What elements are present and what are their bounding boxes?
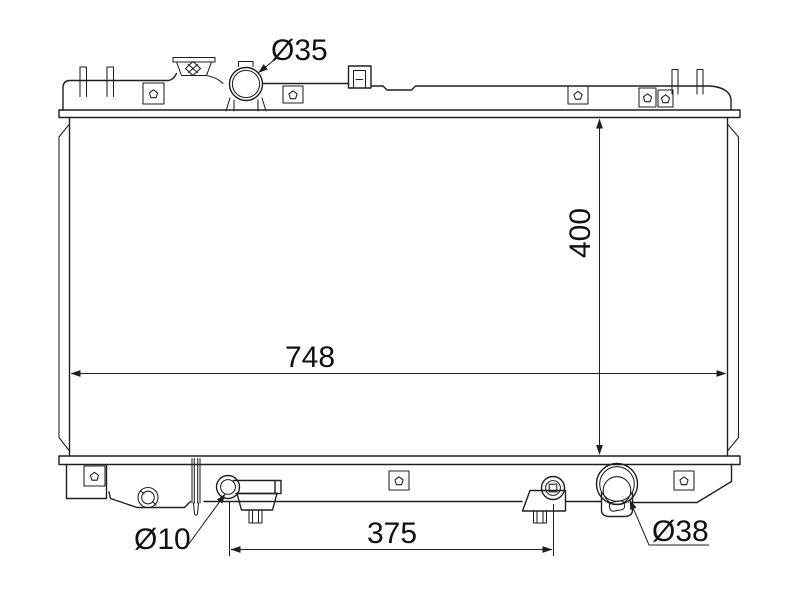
dimension-arrow <box>596 445 603 455</box>
bolt-mount-pin <box>534 511 547 523</box>
reservoir-body <box>177 62 224 84</box>
bolt-fitting <box>542 477 565 500</box>
top-tank <box>59 58 740 118</box>
side-plate-right <box>728 124 739 451</box>
dimension-arrow <box>626 498 636 510</box>
filler-neck-inner <box>232 70 259 97</box>
filler-neck-tab <box>239 62 254 67</box>
dimension-width-748: 748 <box>71 341 727 377</box>
outlet-clip <box>609 500 625 511</box>
drain-plug <box>138 488 158 508</box>
dimension-arrow <box>256 64 268 76</box>
mount-bracket-bottom-1 <box>84 466 105 486</box>
dim-label-d38: Ø38 <box>652 515 709 548</box>
mount-bracket-top-3 <box>568 86 588 104</box>
dimension-arrow <box>231 546 241 553</box>
mounting-pins-top <box>80 67 703 97</box>
bottom-flange <box>59 456 740 465</box>
dimension-span-375: 375 <box>230 501 554 556</box>
dim-label-748: 748 <box>285 341 335 374</box>
label-outlet-diameter: Ø38 <box>626 498 709 548</box>
dim-label-d10: Ø10 <box>134 523 191 556</box>
reservoir-cap-icon <box>186 62 201 76</box>
clip-bracket <box>349 66 372 88</box>
bottom-tank <box>59 456 740 523</box>
mount-bracket-top-5 <box>658 90 673 107</box>
drain-pipe <box>192 459 200 516</box>
label-filler-neck-diameter: Ø35 <box>256 34 328 76</box>
filler-neck <box>226 62 266 112</box>
dim-label-375: 375 <box>367 517 417 550</box>
mount-bracket-bottom-2 <box>389 471 409 490</box>
radiator-technical-drawing: 748 400 375 Ø35 Ø10 Ø38 <box>0 0 800 600</box>
dimension-arrow <box>71 370 81 377</box>
dim-label-d35: Ø35 <box>271 34 328 67</box>
inlet-mount-bracket <box>237 494 277 524</box>
top-flange <box>59 110 740 118</box>
overflow-reservoir <box>173 58 223 84</box>
reservoir-rim <box>173 58 215 63</box>
dimension-arrow <box>596 119 603 129</box>
dim-label-400: 400 <box>564 208 597 258</box>
dimension-height-400: 400 <box>564 119 603 456</box>
radiator-core <box>59 118 739 457</box>
mount-bracket-top-2 <box>283 86 303 103</box>
side-plate-left <box>59 124 70 451</box>
inlet-mount-pin <box>249 510 262 523</box>
core-edges <box>70 118 728 457</box>
filler-neck-outer <box>230 68 263 101</box>
clip-bracket-outer <box>349 66 372 88</box>
dimension-arrow <box>543 546 553 553</box>
mount-bracket-top-1 <box>143 83 164 104</box>
top-tank-outline-right <box>263 84 732 111</box>
radiator-diagram: 748 400 375 Ø35 Ø10 Ø38 <box>0 0 800 600</box>
mount-bracket-top-4 <box>639 88 656 107</box>
dimension-arrow <box>717 370 727 377</box>
mount-bracket-bottom-3 <box>674 471 694 490</box>
inlet-pipe-10mm <box>217 476 282 499</box>
